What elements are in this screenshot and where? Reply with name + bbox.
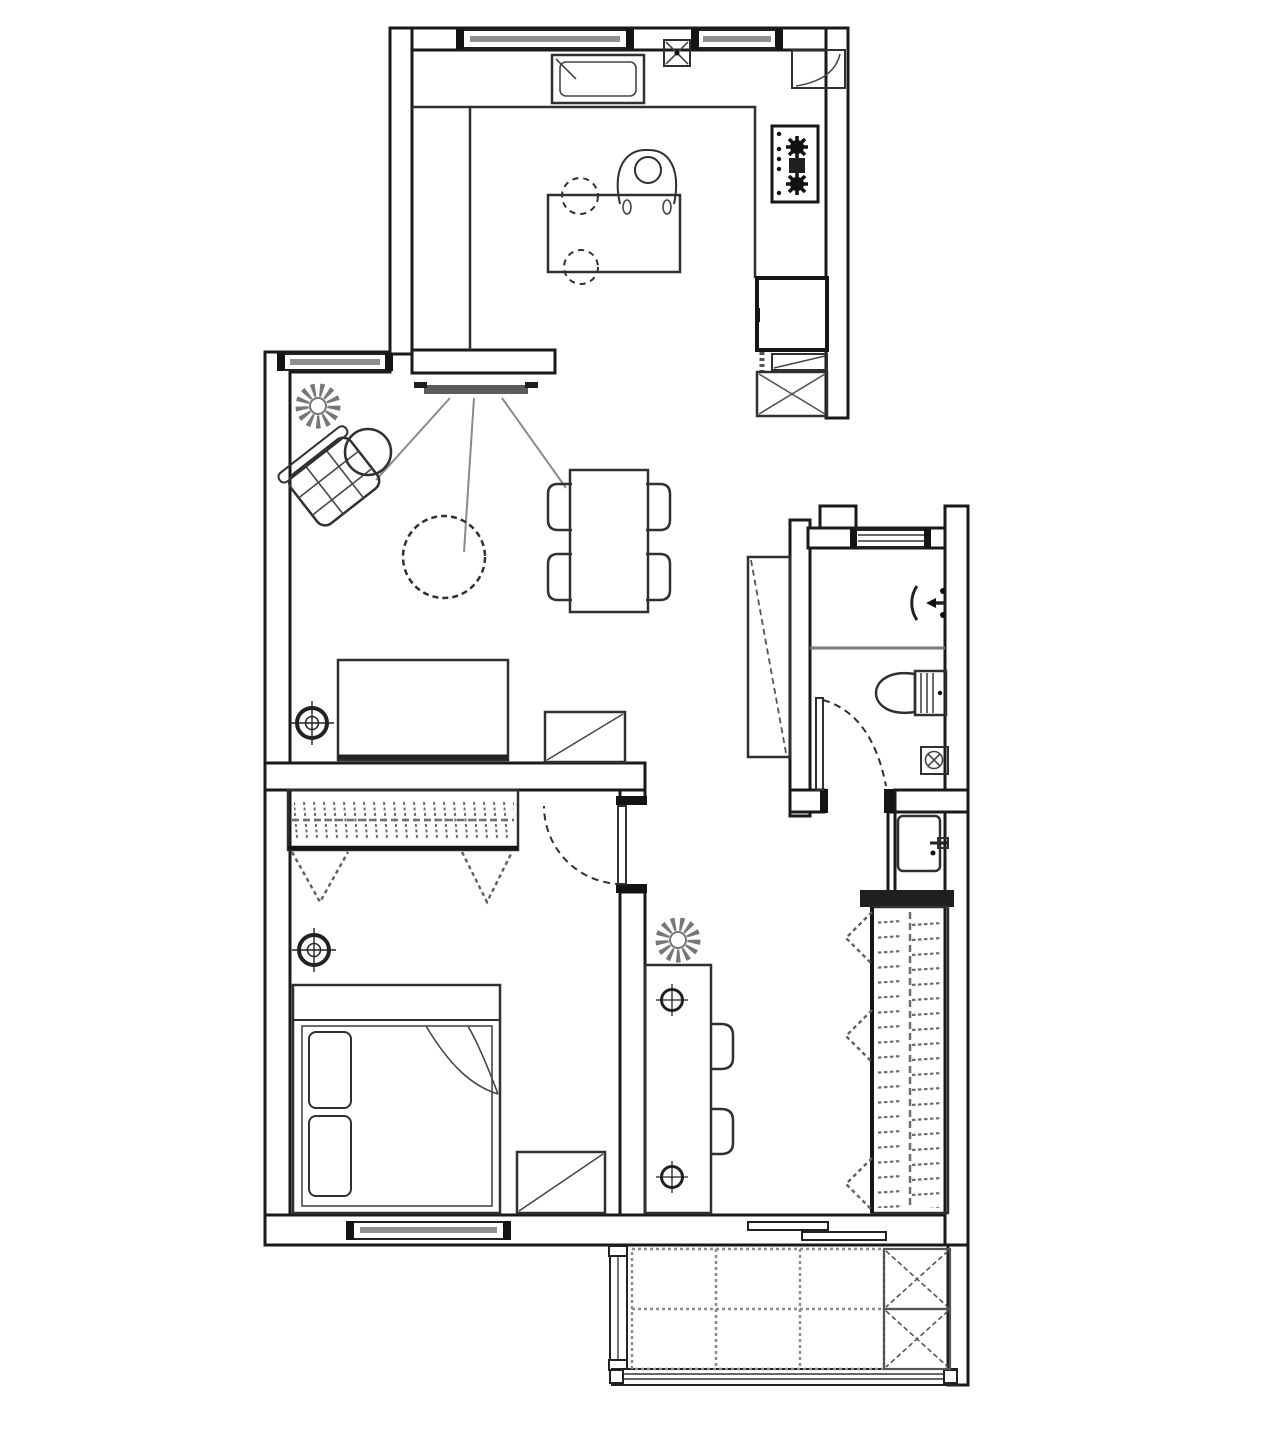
dining-chair bbox=[548, 484, 572, 530]
pillow bbox=[309, 1116, 351, 1196]
wall-bathroom-bottom-left bbox=[790, 790, 824, 812]
closet-cabinet bbox=[872, 907, 948, 1213]
tall-cabinet bbox=[748, 557, 790, 757]
balcony-left-glazing bbox=[609, 1246, 627, 1370]
door-swing-arc bbox=[823, 700, 886, 786]
blanket-fold bbox=[426, 1026, 498, 1094]
desk-chair bbox=[711, 1109, 733, 1154]
door-leaf bbox=[618, 806, 626, 884]
gas-cooktop bbox=[772, 126, 818, 202]
wall-kitchen-bottom-stub bbox=[412, 350, 555, 373]
kitchen-sink bbox=[552, 55, 644, 103]
dining-chair bbox=[646, 554, 670, 600]
plant-icon bbox=[662, 924, 694, 956]
wall-bathroom-step bbox=[820, 506, 856, 530]
bar-stool bbox=[564, 250, 598, 284]
floor-tile-grid bbox=[632, 1249, 884, 1369]
ceiling-light-icon bbox=[656, 1161, 688, 1193]
balcony-bottom-railing bbox=[610, 1369, 957, 1385]
door-swing-triangle bbox=[846, 912, 872, 964]
floor-plan bbox=[0, 0, 1280, 1430]
burner-icon bbox=[786, 136, 808, 158]
wall-basin-niche bbox=[888, 812, 895, 895]
refrigerator bbox=[757, 278, 827, 350]
floor-plan-page bbox=[0, 0, 1280, 1430]
shower-head-icon bbox=[912, 586, 946, 620]
burner-icon bbox=[786, 173, 808, 195]
bedroom-door bbox=[544, 796, 647, 893]
drawer-unit bbox=[772, 354, 827, 370]
living-room-window bbox=[277, 353, 393, 371]
desk-chair bbox=[711, 1024, 733, 1069]
bedroom-window bbox=[346, 1221, 511, 1240]
closet-header-panel bbox=[860, 890, 954, 907]
door-leaf bbox=[816, 698, 823, 790]
sofa bbox=[338, 660, 508, 760]
armchair bbox=[276, 424, 386, 532]
kitchen-table bbox=[548, 195, 680, 272]
room-balcony bbox=[632, 1249, 950, 1369]
door-swing-triangle bbox=[846, 1010, 872, 1062]
washing-machine bbox=[757, 372, 827, 416]
dining-table bbox=[570, 470, 648, 612]
bathroom-window bbox=[850, 529, 931, 548]
walls bbox=[265, 28, 968, 1385]
nightstand bbox=[517, 1152, 605, 1213]
windows bbox=[277, 29, 957, 1385]
wall-living-bedroom-divider bbox=[265, 763, 645, 790]
door-swing-arc bbox=[544, 806, 622, 884]
ceiling-light-icon bbox=[656, 984, 688, 1016]
dining-chair bbox=[548, 554, 572, 600]
built-in-wardrobe bbox=[288, 790, 518, 850]
bathroom-door bbox=[816, 698, 894, 813]
ceiling-light-icon bbox=[292, 928, 336, 972]
door-swing-triangle bbox=[846, 1158, 872, 1210]
room-hallway bbox=[645, 924, 733, 1213]
wall-bedroom-right-lower bbox=[620, 892, 645, 1215]
side-table bbox=[545, 712, 625, 762]
room-bedroom bbox=[288, 790, 647, 1213]
seated-person bbox=[618, 150, 676, 214]
wall-bathroom-bottom-right bbox=[895, 790, 968, 812]
kitchen-window-left bbox=[456, 29, 634, 49]
ceiling-light-icon bbox=[290, 701, 334, 745]
storage-box bbox=[884, 1309, 950, 1369]
hanging-clothes-symbol bbox=[292, 852, 348, 902]
washbasin bbox=[898, 816, 948, 871]
ottoman bbox=[345, 429, 391, 475]
dining-chairs bbox=[548, 484, 670, 600]
round-coffee-table bbox=[403, 516, 485, 598]
tv-viewing-lines bbox=[376, 398, 566, 552]
kitchen-window-right bbox=[691, 29, 783, 49]
kitchen-counter bbox=[412, 107, 755, 350]
desk bbox=[645, 965, 711, 1213]
wall-left-outer bbox=[265, 352, 290, 1245]
room-living bbox=[276, 382, 670, 762]
wall-tv bbox=[414, 382, 538, 394]
pillow bbox=[309, 1032, 351, 1108]
storage-box bbox=[884, 1249, 950, 1309]
dining-chair bbox=[646, 484, 670, 530]
room-closet bbox=[846, 890, 954, 1213]
wall-kitchen-left bbox=[390, 28, 412, 354]
plant-icon bbox=[302, 390, 334, 422]
double-bed bbox=[293, 985, 500, 1213]
toilet bbox=[876, 671, 946, 715]
hanging-clothes-symbol bbox=[462, 852, 512, 902]
room-bathroom bbox=[748, 557, 948, 871]
wall-bathroom-left bbox=[790, 520, 810, 816]
